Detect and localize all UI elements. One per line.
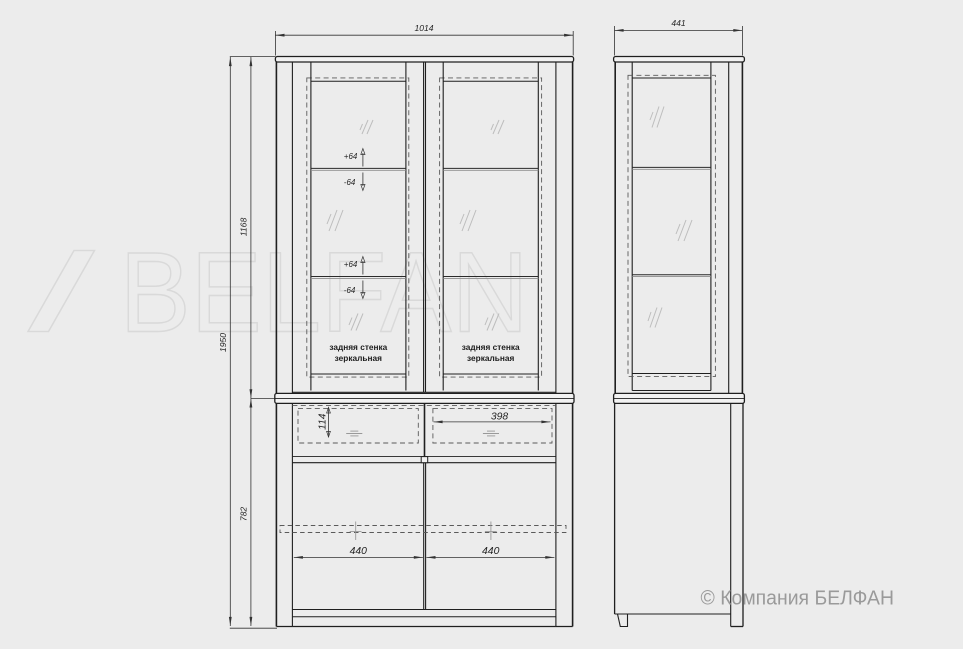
svg-text:1168: 1168 <box>239 218 249 237</box>
svg-text:-64: -64 <box>344 178 356 187</box>
svg-text:задняя стенка: задняя стенка <box>329 342 387 352</box>
svg-text:398: 398 <box>491 411 509 422</box>
svg-text:-64: -64 <box>344 286 356 295</box>
svg-text:114: 114 <box>317 413 328 430</box>
svg-text:задняя стенка: задняя стенка <box>462 342 520 352</box>
svg-text:440: 440 <box>482 546 500 557</box>
svg-text:782: 782 <box>239 507 249 522</box>
svg-text:+64: +64 <box>344 260 358 269</box>
svg-text:440: 440 <box>350 546 368 557</box>
svg-text:© Компания БЕЛФАН: © Компания БЕЛФАН <box>701 588 895 610</box>
svg-text:зеркальная: зеркальная <box>335 353 382 363</box>
svg-text:1950: 1950 <box>218 333 228 352</box>
svg-text:BELFAN: BELFAN <box>120 230 529 357</box>
svg-text:+64: +64 <box>344 152 358 161</box>
svg-text:зеркальная: зеркальная <box>467 353 514 363</box>
svg-text:1014: 1014 <box>414 23 433 33</box>
svg-text:441: 441 <box>671 18 686 28</box>
